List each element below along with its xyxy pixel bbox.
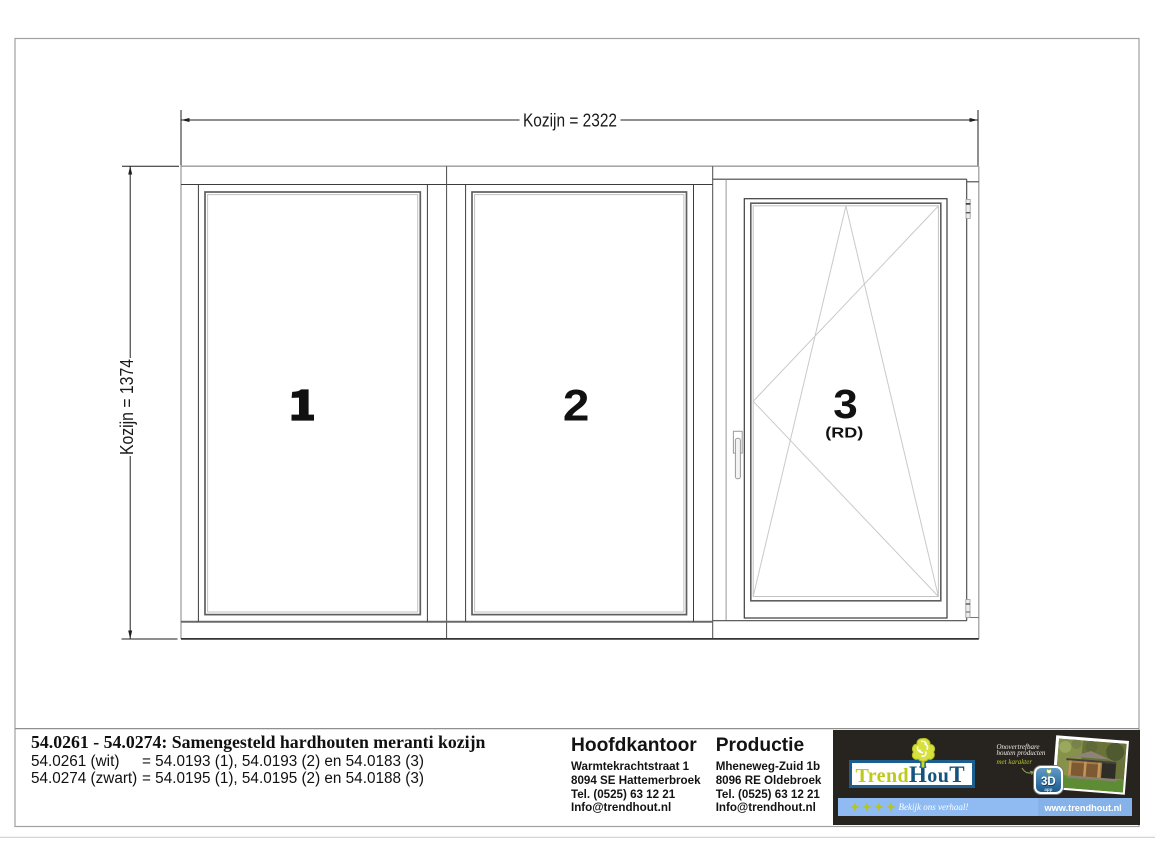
svg-text:Kozijn = 2322: Kozijn = 2322	[523, 109, 617, 130]
svg-text:(RD): (RD)	[825, 424, 863, 441]
svg-text:Kozijn = 1374: Kozijn = 1374	[116, 359, 137, 455]
svg-text:2: 2	[563, 382, 590, 431]
svg-text:3: 3	[833, 381, 858, 427]
